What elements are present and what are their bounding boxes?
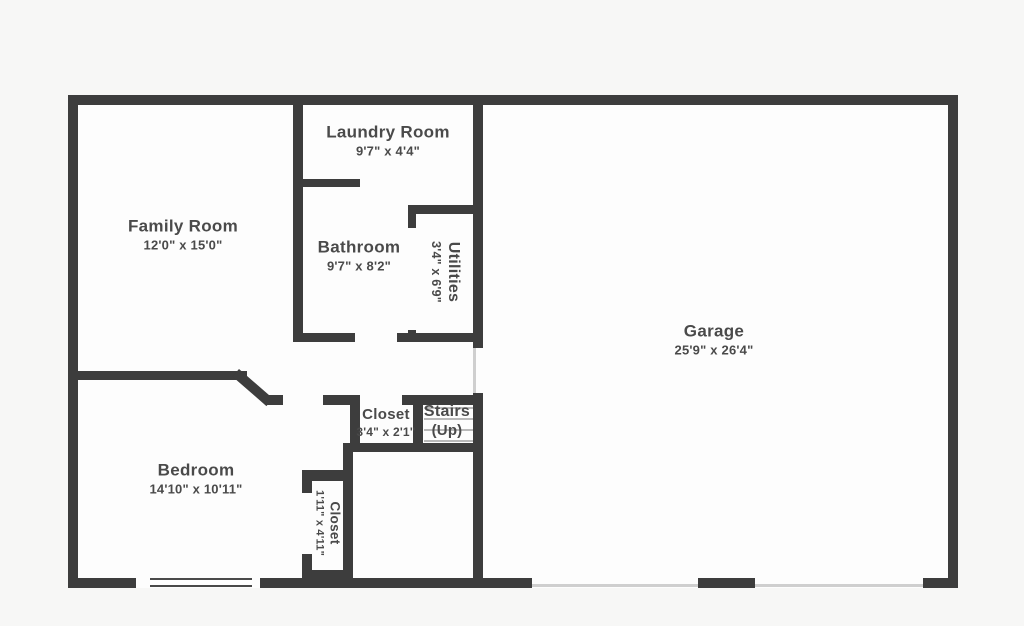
wall-closet-stairs-bottom [345,443,483,452]
floor-area [68,95,958,588]
room-name-bathroom: Bathroom [318,237,401,258]
room-label-stairs: Stairs (Up) [424,402,470,440]
room-label-bedroomcloset: Closet 1'11" x 4'11" [312,490,343,556]
room-label-laundry: Laundry Room 9'7" x 4'4" [326,122,450,161]
room-dims-bathroom: 9'7" x 8'2" [318,258,401,276]
wall-bedroom-top [78,371,247,380]
room-name-utilities: Utilities [444,241,463,303]
stair-tread-4 [424,440,473,442]
wall-bathroom-bottom-right [397,333,478,342]
room-name-laundry: Laundry Room [326,122,450,143]
room-dims-garage: 25'9" x 26'4" [675,342,754,360]
wall-garage-left-upper [473,105,483,348]
room-label-garage: Garage 25'9" x 26'4" [675,321,754,360]
wall-exterior-right [948,95,958,588]
room-dims-bedroom: 14'10" x 10'11" [149,481,242,499]
room-label-familyroom: Family Room 12'0" x 15'0" [128,216,238,255]
wall-hall-bottom-1 [266,395,283,405]
room-name-bedroomcloset: Closet [327,490,343,556]
garage-entry-opening [473,348,476,393]
room-dims-stairs: (Up) [424,421,470,440]
bedroom-window [150,578,252,587]
room-label-bedroom: Bedroom 14'10" x 10'11" [149,460,242,499]
wall-exterior-bottom-3 [698,578,755,588]
garage-door-opening-2 [755,584,923,587]
room-label-bathroom: Bathroom 9'7" x 8'2" [318,237,401,276]
room-name-stairs: Stairs [424,402,470,421]
room-name-hallcloset: Closet [356,406,415,424]
wall-familyroom-right [293,105,303,342]
room-name-familyroom: Family Room [128,216,238,237]
room-label-utilities: Utilities 3'4" x 6'9" [427,241,463,303]
wall-bedcloset-top [302,470,353,481]
wall-bathroom-bottom-left [293,333,355,342]
garage-door-opening-1 [532,584,698,587]
room-dims-bedroomcloset: 1'11" x 4'11" [312,490,327,556]
room-dims-utilities: 3'4" x 6'9" [427,241,444,303]
wall-utilities-left-upper [408,214,416,228]
room-dims-laundry: 9'7" x 4'4" [326,143,450,161]
wall-exterior-bottom-4 [923,578,958,588]
wall-bedcloset-left-upper [302,481,312,493]
room-name-garage: Garage [675,321,754,342]
wall-laundry-bathroom-divider [303,179,360,187]
room-name-bedroom: Bedroom [149,460,242,481]
floor-plan: Laundry Room 9'7" x 4'4" Family Room 12'… [0,0,1024,626]
wall-garage-left-lower [473,393,483,588]
wall-exterior-left [68,95,78,588]
room-label-hallcloset: Closet 3'4" x 2'1" [356,406,415,440]
wall-exterior-top [68,95,958,105]
wall-utilities-top [408,205,478,214]
room-dims-hallcloset: 3'4" x 2'1" [356,424,415,440]
wall-bedcloset-bottom [302,570,353,580]
wall-exterior-bottom-1 [68,578,136,588]
wall-exterior-bottom-2 [260,578,532,588]
room-dims-familyroom: 12'0" x 15'0" [128,237,238,255]
wall-bedcloset-right [343,443,353,588]
